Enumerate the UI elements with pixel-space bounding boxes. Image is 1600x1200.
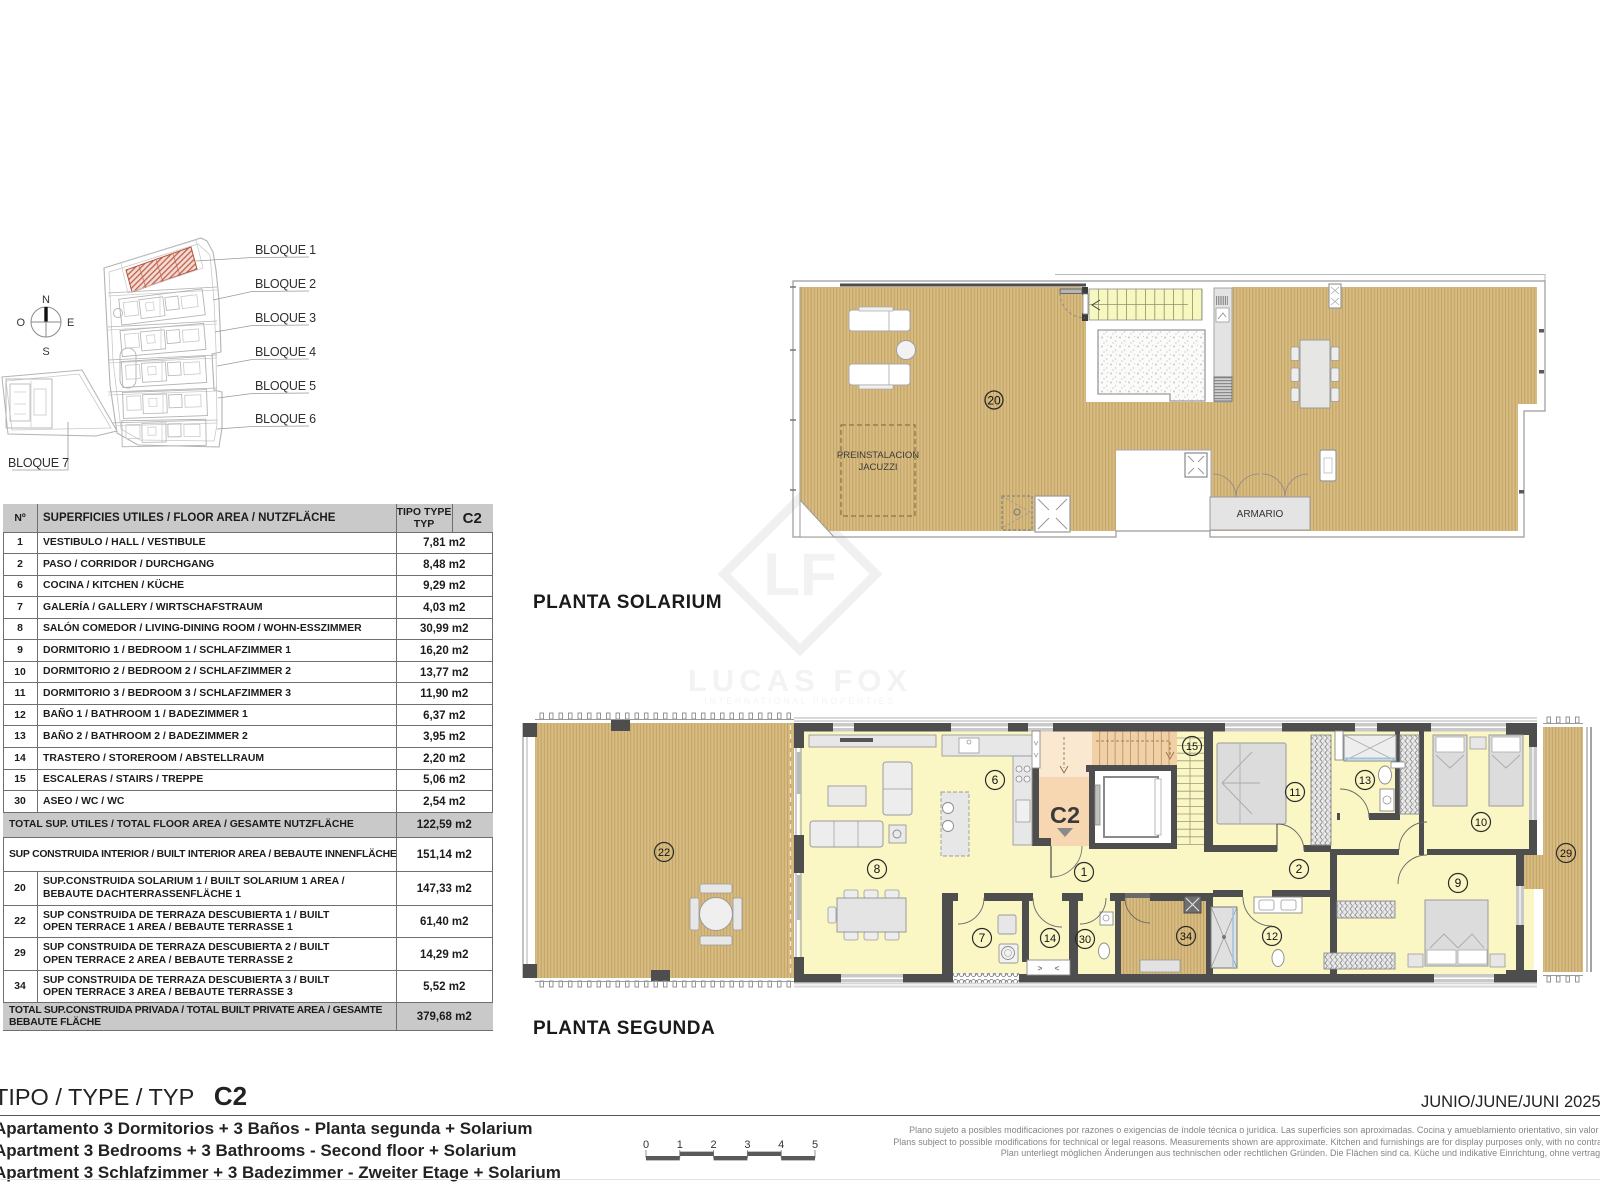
svg-text:2: 2 (711, 1139, 717, 1151)
svg-text:BLOQUE 4: BLOQUE 4 (255, 345, 316, 359)
svg-text:0: 0 (643, 1139, 649, 1151)
svg-text:6: 6 (992, 773, 999, 787)
svg-text:N: N (42, 294, 50, 306)
svg-text:30: 30 (1079, 934, 1091, 946)
svg-text:PREINSTALACION: PREINSTALACION (837, 450, 919, 461)
svg-text:10: 10 (1475, 817, 1487, 829)
svg-text:1: 1 (1081, 865, 1088, 879)
svg-text:BLOQUE 2: BLOQUE 2 (255, 277, 316, 291)
svg-text:3: 3 (744, 1139, 750, 1151)
svg-text:BLOQUE 7: BLOQUE 7 (8, 456, 69, 470)
svg-text:LUCAS FOX: LUCAS FOX (690, 663, 912, 698)
svg-text:5: 5 (812, 1139, 818, 1151)
svg-text:15: 15 (1186, 741, 1198, 753)
svg-text:>: > (1038, 964, 1043, 973)
svg-text:12: 12 (1266, 931, 1278, 943)
svg-text:C2: C2 (1050, 802, 1080, 828)
svg-text:29: 29 (1560, 848, 1572, 860)
svg-text:BLOQUE 6: BLOQUE 6 (255, 412, 316, 426)
svg-text:BLOQUE 3: BLOQUE 3 (255, 311, 316, 325)
svg-text:LF: LF (763, 541, 836, 608)
svg-text:ARMARIO: ARMARIO (1237, 509, 1284, 520)
svg-text:7: 7 (979, 931, 986, 945)
svg-text:20: 20 (987, 394, 1001, 408)
svg-text:1: 1 (677, 1139, 683, 1151)
svg-text:13: 13 (1359, 775, 1371, 787)
svg-text:9: 9 (1455, 876, 1462, 890)
svg-text:JACUZZI: JACUZZI (858, 462, 897, 473)
svg-text:22: 22 (658, 847, 670, 859)
svg-text:S: S (42, 346, 49, 358)
svg-text:11: 11 (1289, 787, 1300, 799)
svg-text:2: 2 (1296, 862, 1303, 876)
svg-text:8: 8 (874, 862, 881, 876)
svg-text:O: O (16, 317, 25, 329)
svg-text:<: < (1055, 964, 1060, 973)
svg-text:BLOQUE 5: BLOQUE 5 (255, 379, 316, 393)
svg-text:34: 34 (1180, 931, 1192, 943)
svg-text:BLOQUE 1: BLOQUE 1 (255, 243, 316, 257)
svg-text:4: 4 (778, 1139, 784, 1151)
svg-text:E: E (67, 317, 74, 329)
svg-text:14: 14 (1044, 933, 1056, 945)
